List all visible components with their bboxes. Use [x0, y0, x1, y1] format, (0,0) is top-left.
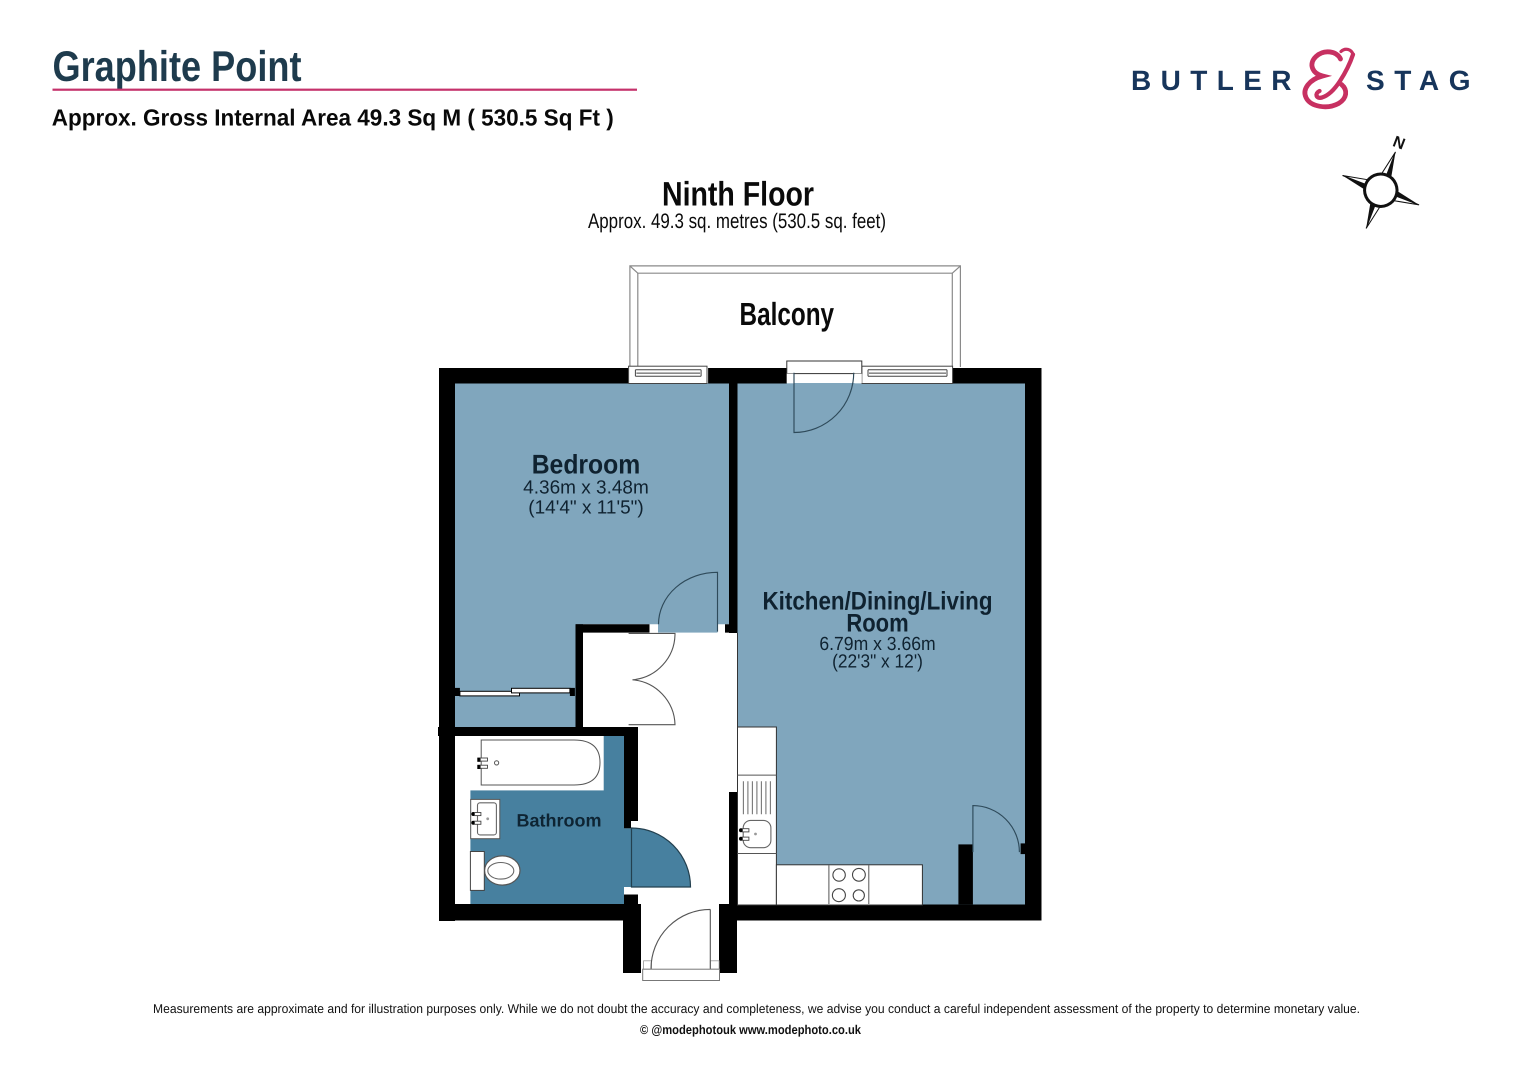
svg-text:Approx. 49.3 sq. metres (530.5: Approx. 49.3 sq. metres (530.5 sq. feet): [588, 210, 886, 233]
svg-text:Bedroom: Bedroom: [532, 450, 641, 480]
svg-text:4.36m x 3.48m: 4.36m x 3.48m: [523, 478, 649, 499]
svg-text:STAG: STAG: [1366, 65, 1478, 96]
svg-text:Bathroom: Bathroom: [517, 811, 602, 831]
svg-text:(22'3" x 12'): (22'3" x 12'): [832, 652, 923, 673]
svg-text:Approx. Gross Internal Area 49: Approx. Gross Internal Area 49.3 Sq M ( …: [52, 105, 614, 131]
svg-text:(14'4" x 11'5"): (14'4" x 11'5"): [528, 498, 643, 519]
svg-text:Ninth Floor: Ninth Floor: [662, 176, 814, 214]
svg-text:Balcony: Balcony: [740, 296, 835, 332]
svg-text:Graphite Point: Graphite Point: [53, 43, 302, 91]
svg-text:© @modephotouk www.modephoto.c: © @modephotouk www.modephoto.co.uk: [640, 1022, 862, 1037]
svg-text:Measurements are approximate a: Measurements are approximate and for ill…: [153, 1001, 1360, 1016]
